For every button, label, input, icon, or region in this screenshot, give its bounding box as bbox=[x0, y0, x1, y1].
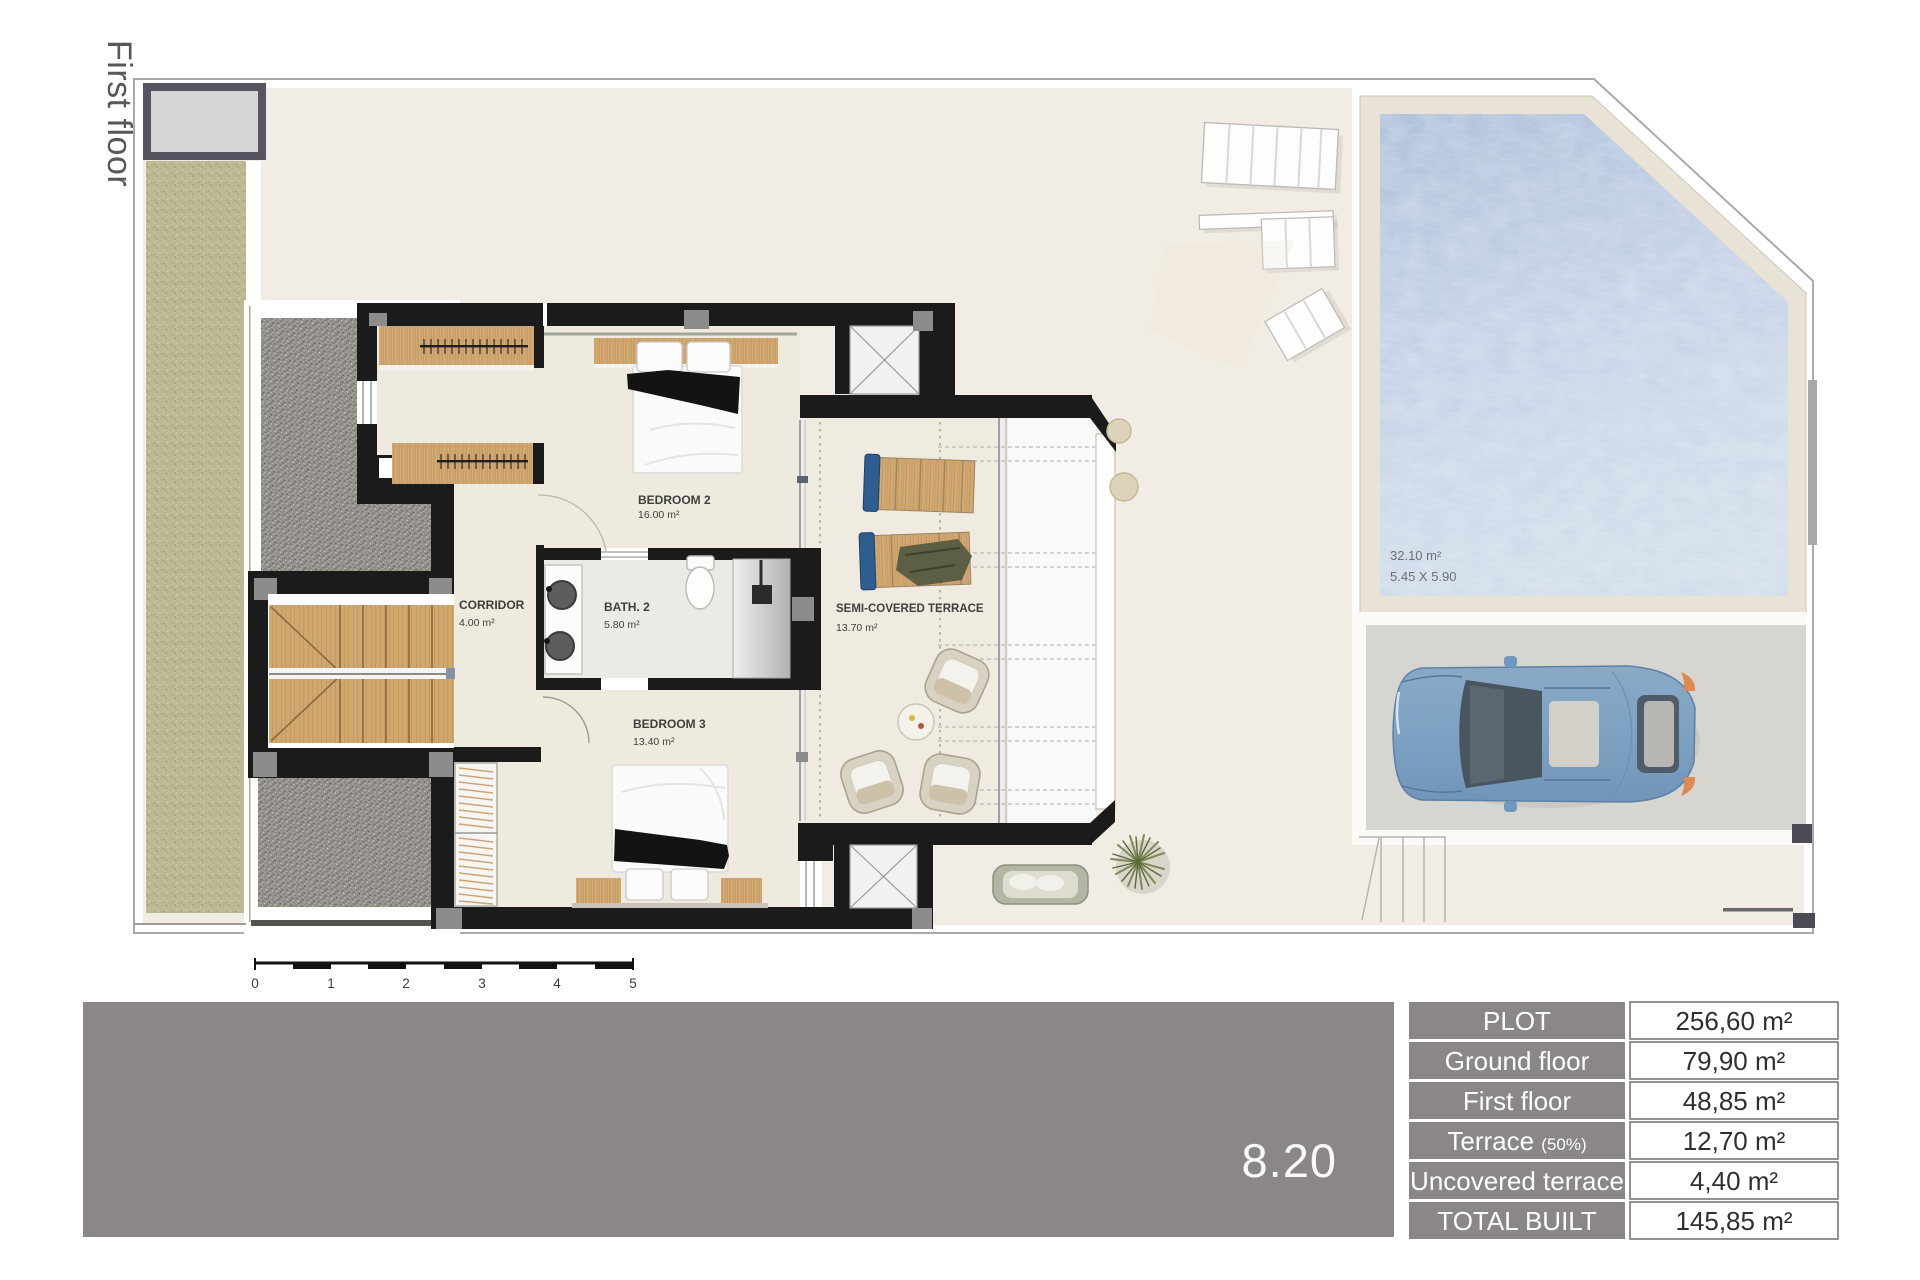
svg-text:1: 1 bbox=[327, 976, 335, 991]
svg-text:32.10 m²: 32.10 m² bbox=[1390, 548, 1442, 563]
svg-text:0: 0 bbox=[251, 976, 259, 991]
svg-text:First floor: First floor bbox=[1463, 1086, 1572, 1116]
svg-text:SEMI-COVERED TERRACE: SEMI-COVERED TERRACE bbox=[836, 603, 984, 615]
svg-text:12,70 m²: 12,70 m² bbox=[1683, 1126, 1786, 1156]
svg-text:First floor: First floor bbox=[100, 40, 138, 187]
svg-text:13.70 m²: 13.70 m² bbox=[836, 622, 878, 634]
svg-text:4,40 m²: 4,40 m² bbox=[1690, 1166, 1778, 1196]
svg-text:5.45 X 5.90: 5.45 X 5.90 bbox=[1390, 569, 1457, 584]
svg-text:TOTAL BUILT: TOTAL BUILT bbox=[1437, 1206, 1597, 1236]
svg-text:BEDROOM 2: BEDROOM 2 bbox=[638, 493, 711, 507]
svg-text:5: 5 bbox=[629, 976, 637, 991]
svg-text:5.80 m²: 5.80 m² bbox=[604, 619, 640, 631]
svg-text:145,85 m²: 145,85 m² bbox=[1675, 1206, 1792, 1236]
svg-text:79,90 m²: 79,90 m² bbox=[1683, 1046, 1786, 1076]
svg-text:Uncovered terrace: Uncovered terrace bbox=[1410, 1166, 1624, 1196]
svg-text:48,85 m²: 48,85 m² bbox=[1683, 1086, 1786, 1116]
svg-text:PLOT: PLOT bbox=[1483, 1006, 1551, 1036]
svg-text:CORRIDOR: CORRIDOR bbox=[459, 598, 525, 612]
svg-text:256,60 m²: 256,60 m² bbox=[1675, 1006, 1792, 1036]
svg-text:BEDROOM 3: BEDROOM 3 bbox=[633, 717, 706, 731]
svg-text:4.00 m²: 4.00 m² bbox=[459, 617, 495, 629]
svg-text:13.40 m²: 13.40 m² bbox=[633, 736, 675, 748]
svg-text:4: 4 bbox=[553, 976, 561, 991]
svg-text:Ground floor: Ground floor bbox=[1445, 1046, 1590, 1076]
svg-text:BATH. 2: BATH. 2 bbox=[604, 600, 650, 614]
svg-text:3: 3 bbox=[478, 976, 486, 991]
svg-text:16.00 m²: 16.00 m² bbox=[638, 509, 680, 521]
svg-text:8.20: 8.20 bbox=[1242, 1134, 1337, 1187]
svg-text:2: 2 bbox=[402, 976, 410, 991]
